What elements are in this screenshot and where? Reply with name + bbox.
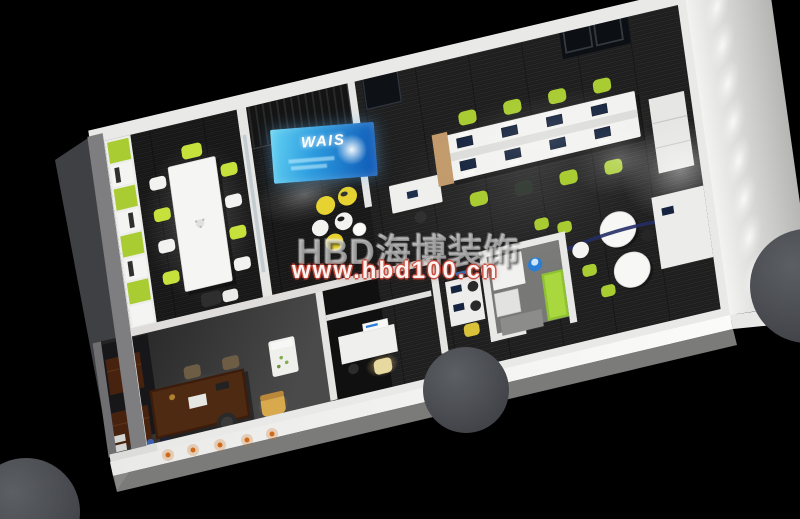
rendering-canvas: WAIS HBD海博装饰 www.hbd100.cn bbox=[0, 0, 800, 519]
side-desk bbox=[651, 186, 713, 270]
watermark-website: www.hbd100.cn bbox=[292, 257, 498, 285]
screen-subtitle-bar bbox=[288, 156, 334, 164]
screen-subtitle-bar bbox=[291, 164, 327, 171]
reception-display-screen: WAIS bbox=[270, 122, 378, 184]
screen-title: WAIS bbox=[300, 131, 346, 151]
render-artifact-sphere bbox=[423, 347, 509, 433]
